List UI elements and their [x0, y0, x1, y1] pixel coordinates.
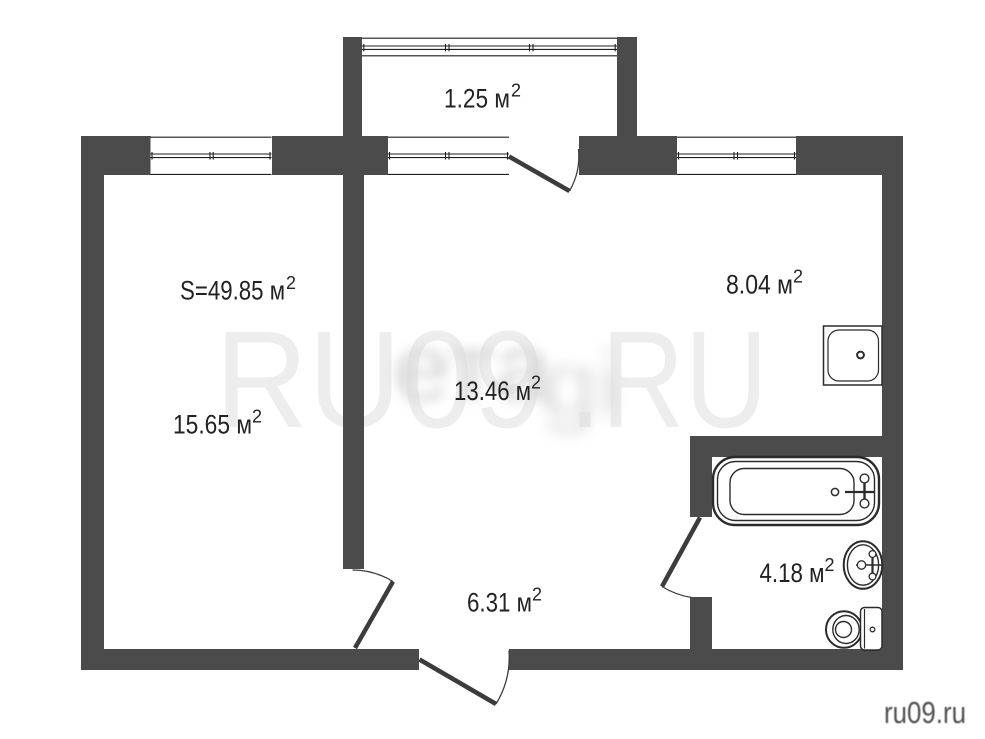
svg-text:2: 2: [511, 81, 521, 101]
svg-text:6.31 м: 6.31 м: [467, 588, 532, 618]
svg-text:2: 2: [532, 585, 542, 605]
svg-text:2: 2: [531, 373, 541, 393]
svg-text:2: 2: [793, 267, 803, 287]
svg-text:4.18 м: 4.18 м: [760, 558, 825, 588]
svg-text:2: 2: [252, 407, 262, 427]
svg-text:1.25 м: 1.25 м: [444, 84, 510, 114]
svg-text:gi: gi: [540, 335, 620, 435]
svg-text:15.65 м: 15.65 м: [173, 410, 252, 440]
svg-text:8.04 м: 8.04 м: [726, 270, 793, 300]
svg-text:2: 2: [286, 273, 296, 293]
svg-text:S=49.85 м: S=49.85 м: [180, 276, 285, 306]
svg-text:2: 2: [825, 555, 835, 575]
svg-text:13.46 м: 13.46 м: [454, 376, 531, 406]
svg-text:ru09.ru: ru09.ru: [884, 695, 966, 730]
